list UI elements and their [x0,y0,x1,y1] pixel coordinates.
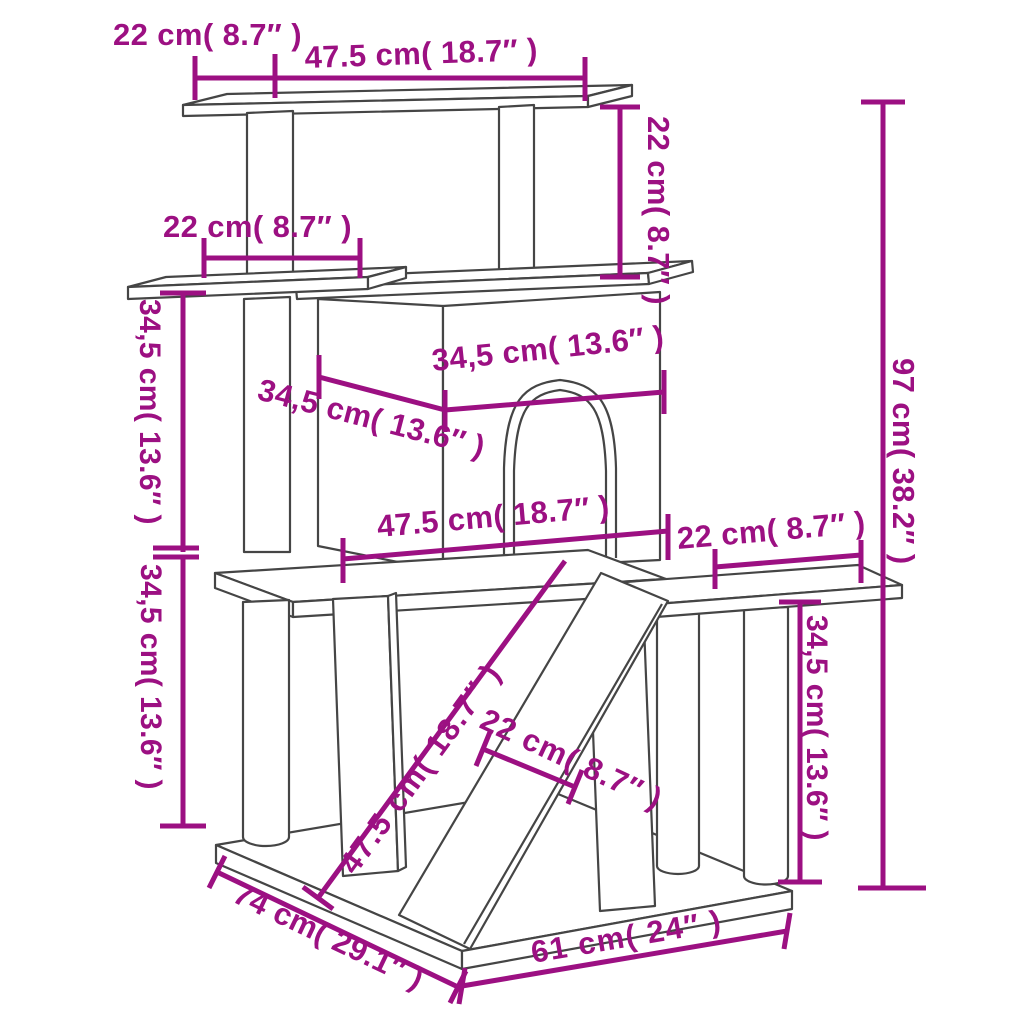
dim-top-platform-width: 47.5 cm( 18.7″ ) [304,32,538,75]
lower-post-left [243,600,289,846]
dimension-label: 34,5 cm( 13.6″ ) [134,564,167,790]
dim-mid-level-drop: 34,5 cm( 13.6″ ) [134,557,206,826]
dim-shelf-level-drop: 34,5 cm( 13.6″ ) [133,293,206,557]
dimension-label: 22 cm( 8.7″ ) [113,17,302,52]
dim-top-to-house-gap: 22 cm( 8.7″ ) [600,107,676,305]
dimension-label: 22 cm( 8.7″ ) [641,116,676,305]
diagram-canvas: 22 cm( 8.7″ ) 47.5 cm( 18.7″ ) 22 cm( 8.… [0,0,1024,1024]
dimension-label: 97 cm( 38.2″ ) [886,358,921,565]
dimension-label: 47.5 cm( 18.7″ ) [304,32,538,75]
dim-total-height: 97 cm( 38.2″ ) [858,102,926,888]
dimension-line [600,107,640,277]
shelf-post [244,297,290,552]
lower-post-right-1 [657,611,699,874]
lower-post-right-2 [744,607,788,885]
cat-tree-dimension-diagram: 22 cm( 8.7″ ) 47.5 cm( 18.7″ ) 22 cm( 8.… [0,0,1024,1024]
dimension-label: 22 cm( 8.7″ ) [163,209,352,244]
dimension-label: 34,5 cm( 13.6″ ) [133,299,166,525]
top-platform [183,85,632,116]
upper-post-right [499,105,534,274]
dimension-label: 34,5 cm( 13.6″ ) [800,615,833,841]
dimension-label: 22 cm( 8.7″ ) [676,505,867,556]
